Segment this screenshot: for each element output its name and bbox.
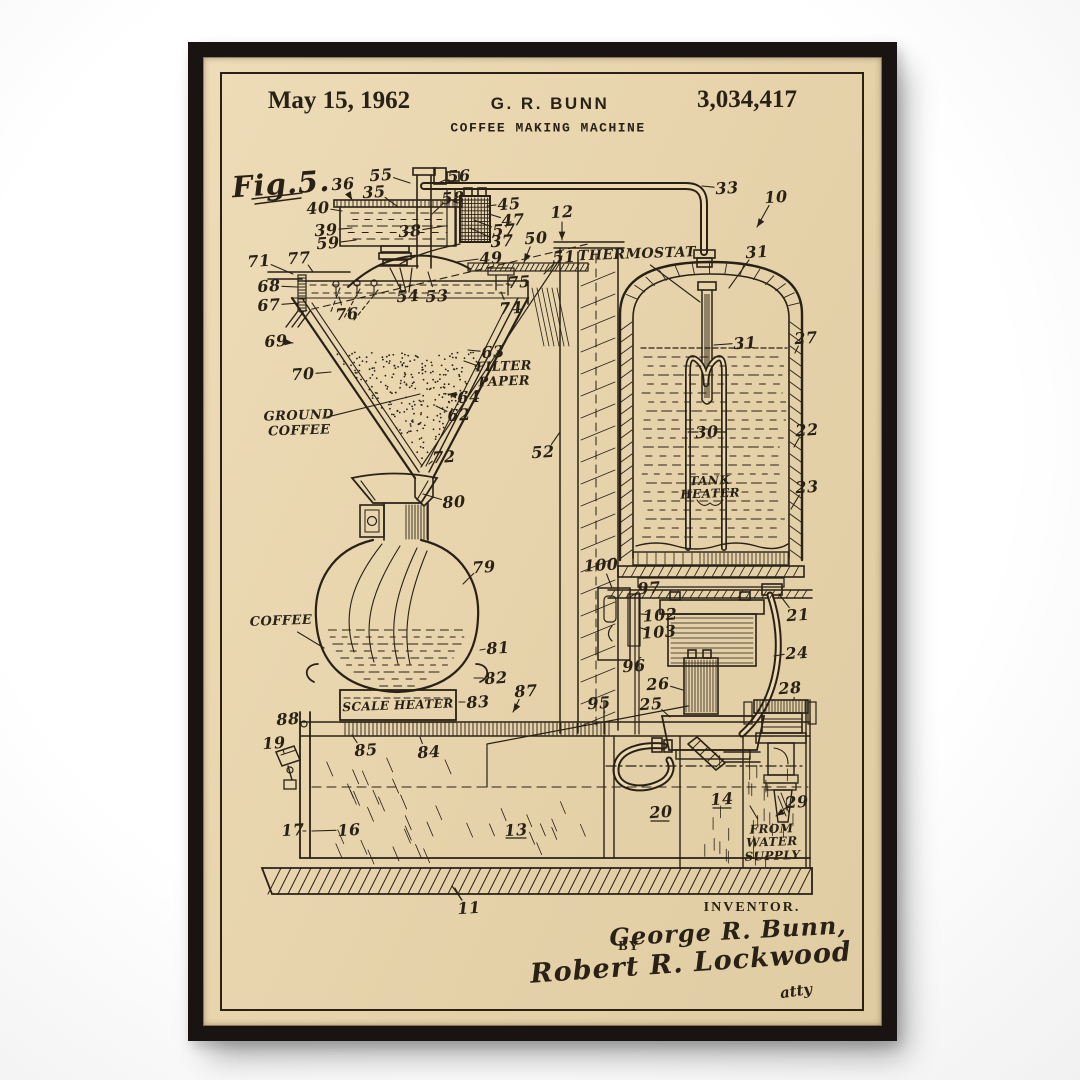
patent-drawing [0,0,1080,1080]
top-pipe [424,186,716,290]
generated-shading [268,198,811,894]
dome-and-deck [268,244,588,467]
carafe [307,474,487,723]
fig-label-underline [252,193,302,204]
drain-spigot [276,721,307,789]
hot-water-tank [608,262,812,598]
poster-photo: { "poster": { "frame_color": "#191411", … [0,0,1080,1080]
